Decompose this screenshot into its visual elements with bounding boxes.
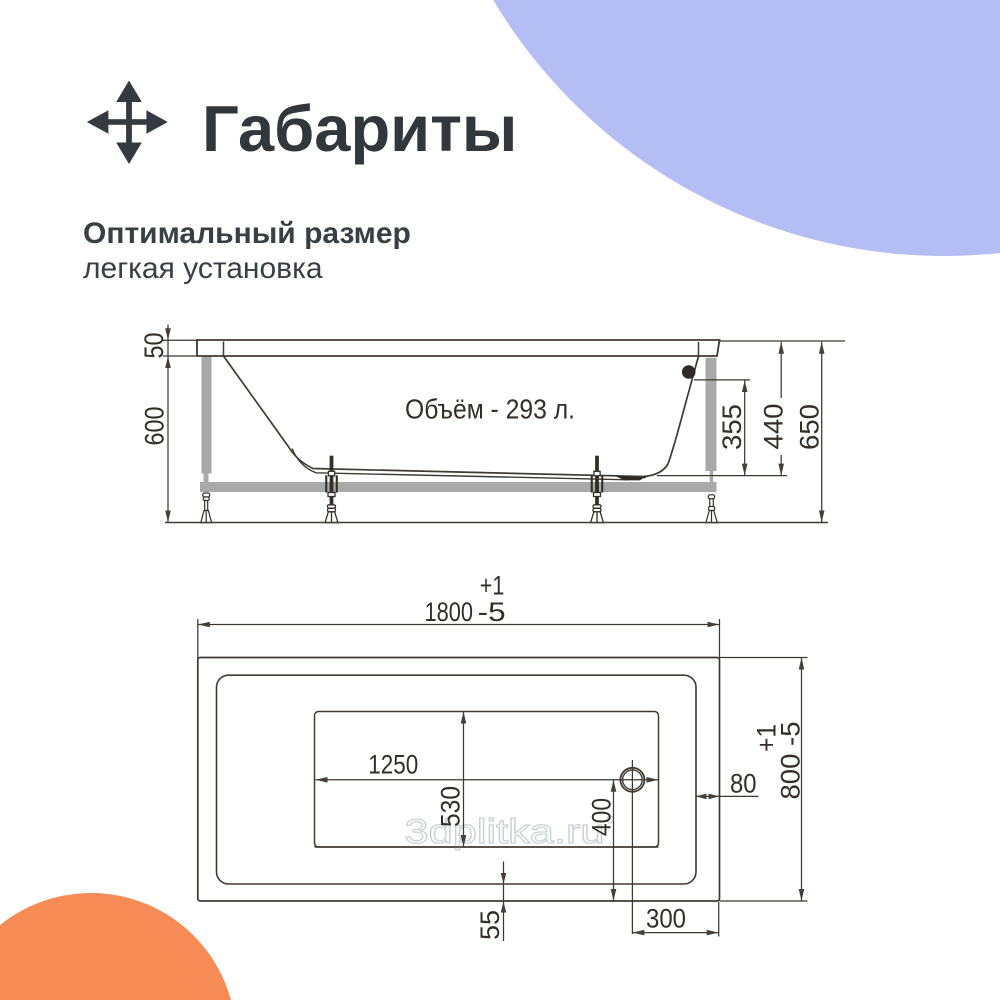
svg-text:600: 600: [140, 407, 170, 446]
svg-text:400: 400: [587, 798, 617, 836]
svg-text:440: 440: [759, 404, 789, 450]
svg-text:-5: -5: [478, 597, 506, 627]
svg-text:+1: +1: [480, 571, 505, 601]
svg-text:Габариты: Габариты: [202, 92, 517, 165]
svg-text:1800: 1800: [425, 597, 474, 627]
svg-text:Оптимальный размер: Оптимальный размер: [83, 217, 411, 250]
svg-text:55: 55: [475, 910, 505, 940]
svg-text:1250: 1250: [368, 750, 418, 780]
svg-text:650: 650: [795, 404, 825, 450]
svg-text:355: 355: [717, 404, 747, 450]
svg-text:530: 530: [436, 786, 466, 827]
svg-text:Объём - 293 л.: Объём - 293 л.: [405, 394, 575, 425]
svg-text:легкая установка: легкая установка: [83, 252, 323, 285]
svg-text:3dplitka.ru: 3dplitka.ru: [405, 813, 605, 851]
svg-text:+1: +1: [752, 724, 782, 752]
svg-text:80: 80: [730, 769, 757, 799]
svg-text:300: 300: [646, 904, 686, 934]
svg-text:50: 50: [139, 333, 169, 359]
